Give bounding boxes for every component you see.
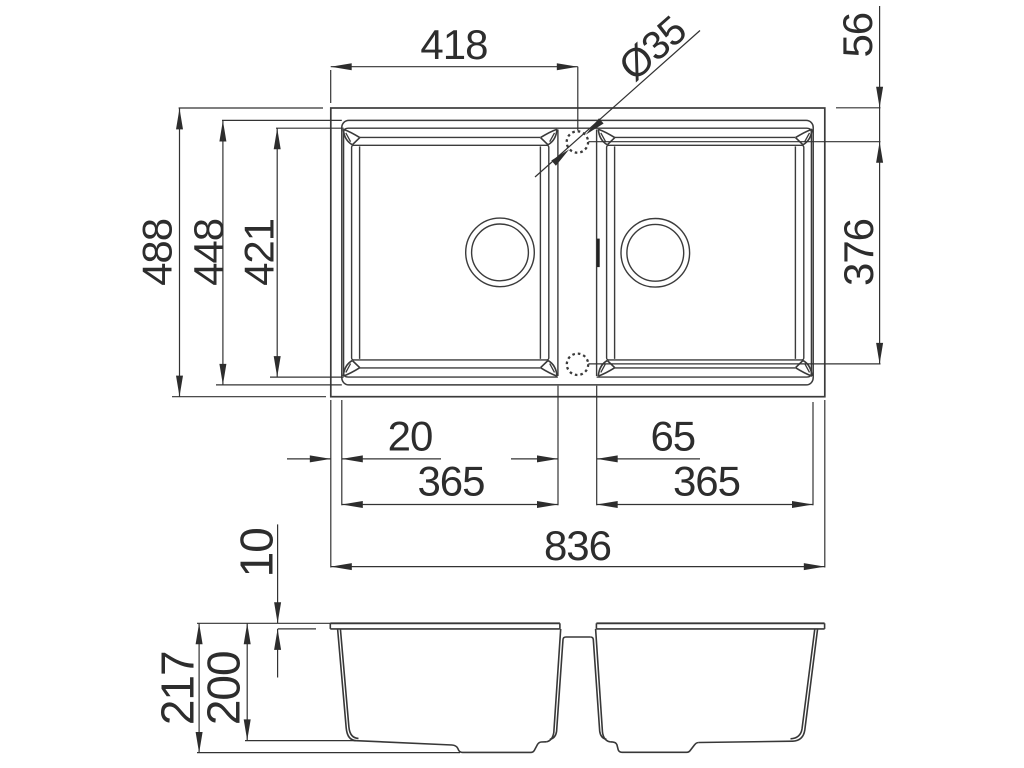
- svg-text:200: 200: [198, 651, 250, 725]
- svg-text:10: 10: [230, 528, 282, 577]
- svg-text:20: 20: [388, 413, 433, 460]
- svg-text:488: 488: [133, 219, 180, 286]
- svg-text:365: 365: [673, 458, 740, 505]
- svg-text:65: 65: [650, 413, 695, 460]
- svg-text:56: 56: [834, 13, 881, 58]
- svg-text:448: 448: [185, 219, 232, 286]
- svg-text:836: 836: [544, 522, 611, 569]
- svg-text:376: 376: [835, 219, 882, 286]
- svg-text:Ø35: Ø35: [611, 8, 695, 89]
- svg-text:421: 421: [236, 219, 283, 286]
- svg-text:418: 418: [420, 21, 487, 68]
- svg-text:365: 365: [417, 458, 484, 505]
- svg-text:217: 217: [152, 651, 204, 725]
